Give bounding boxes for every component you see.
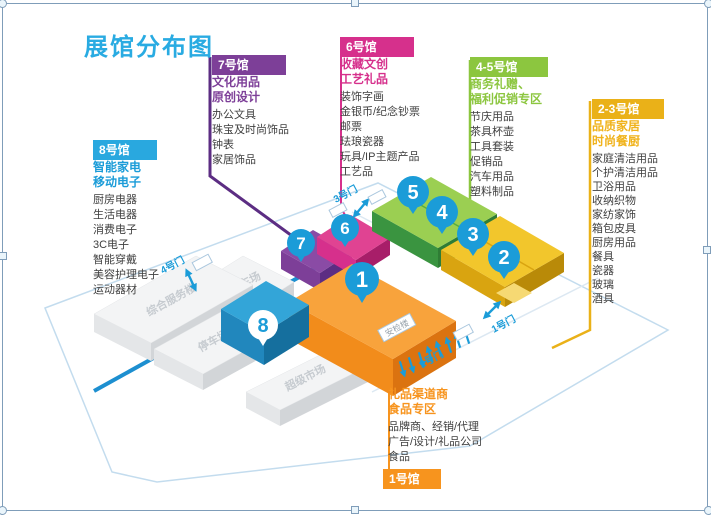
card-item: 餐具 [592, 250, 711, 264]
svg-text:2: 2 [498, 247, 509, 269]
card-item: 茶具杯壶 [470, 125, 590, 140]
hall-6-subtitle: 收藏文创 [340, 57, 460, 72]
svg-text:4: 4 [436, 202, 448, 224]
card-item: 厨房用品 [592, 236, 711, 250]
svg-text:8: 8 [257, 315, 268, 337]
card-item: 品牌商、经销/代理 [388, 420, 508, 435]
card-item: 装饰字画 [340, 90, 460, 105]
card-item: 玻璃 [592, 278, 711, 292]
card-item: 运动器材 [93, 283, 213, 298]
hall-8-subtitle: 移动电子 [93, 175, 213, 190]
card-item: 促销品 [470, 155, 590, 170]
svg-text:3: 3 [467, 224, 478, 246]
hall-4-5-subtitle: 商务礼赠、 [470, 77, 590, 92]
card-item: 广告/设计/礼品公司 [388, 435, 508, 450]
card-item: 瓷器 [592, 264, 711, 278]
card-item: 珐琅瓷器 [340, 135, 460, 150]
card-item: 汽车用品 [470, 170, 590, 185]
hall-7-card-header: 7号馆 [212, 55, 286, 75]
hall-7-subtitle: 原创设计 [212, 90, 332, 105]
card-item: 个护清洁用品 [592, 166, 711, 180]
hall-8-subtitle: 智能家电 [93, 160, 213, 175]
hall-4-5-card-header: 4-5号馆 [470, 57, 548, 77]
hall-2-3-card: 2-3号馆 品质家居 时尚餐厨 家庭清洁用品 个护清洁用品 卫浴用品 收纳织物 … [592, 99, 711, 306]
hall-1-subtitle: 礼品渠道商 [388, 387, 508, 402]
gate-3-label: 3号门 [331, 182, 360, 205]
card-item: 3C电子 [93, 238, 213, 253]
card-item: 生活电器 [93, 208, 213, 223]
card-item: 钟表 [212, 138, 332, 153]
card-item: 厨房电器 [93, 193, 213, 208]
svg-text:1: 1 [356, 267, 368, 292]
exhibition-map-image: 停车场 综合服务楼 停车场 超级市场 [0, 0, 711, 517]
svg-text:5: 5 [407, 182, 418, 204]
card-item: 家纺家饰 [592, 208, 711, 222]
hall-1-card: 礼品渠道商 食品专区 品牌商、经销/代理 广告/设计/礼品公司 食品 1号馆 [388, 383, 508, 489]
hall-1-subtitle: 食品专区 [388, 402, 508, 417]
hall-6-card-header: 6号馆 [340, 37, 414, 57]
card-item: 工具套装 [470, 140, 590, 155]
hall-6-subtitle: 工艺礼品 [340, 72, 460, 87]
card-item: 卫浴用品 [592, 180, 711, 194]
hall-2-3-subtitle: 品质家居 [592, 119, 711, 134]
card-item: 消费电子 [93, 223, 213, 238]
hall-1-card-header: 1号馆 [383, 469, 441, 489]
gate-1-label: 1号门 [489, 312, 518, 335]
card-item: 家居饰品 [212, 153, 332, 168]
hall-6-card: 6号馆 收藏文创 工艺礼品 装饰字画 金银币/纪念钞票 邮票 珐琅瓷器 玩具/I… [340, 37, 460, 180]
card-item: 美容护理电子 [93, 268, 213, 283]
card-item: 酒具 [592, 292, 711, 306]
hall-4-5-card: 4-5号馆 商务礼赠、 福利促销专区 节庆用品 茶具杯壶 工具套装 促销品 汽车… [470, 57, 590, 200]
selection-border-right [707, 3, 708, 510]
svg-text:7: 7 [296, 234, 305, 253]
gate-1-arrow-icon [480, 298, 504, 322]
card-item: 塑料制品 [470, 185, 590, 200]
card-item: 智能穿戴 [93, 253, 213, 268]
page-title: 展馆分布图 [84, 27, 214, 62]
gate-3-booth-right [368, 190, 386, 205]
hall-8-card-header: 8号馆 [93, 140, 157, 160]
card-item: 珠宝及时尚饰品 [212, 123, 332, 138]
resize-handle-bottom-center[interactable] [351, 506, 359, 514]
gate-1-booth [453, 324, 473, 340]
svg-text:6: 6 [340, 219, 349, 238]
hall-2-3-subtitle: 时尚餐厨 [592, 134, 711, 149]
resize-handle-bottom-right[interactable] [704, 506, 711, 515]
card-item: 玩具/IP主题产品 [340, 150, 460, 165]
resize-handle-middle-right[interactable] [703, 246, 711, 254]
resize-handle-middle-left[interactable] [0, 252, 7, 260]
card-item: 办公文具 [212, 108, 332, 123]
hall-7-card: 7号馆 文化用品 原创设计 办公文具 珠宝及时尚饰品 钟表 家居饰品 [212, 55, 332, 168]
card-item: 家庭清洁用品 [592, 152, 711, 166]
hall-8-card: 8号馆 智能家电 移动电子 厨房电器 生活电器 消费电子 3C电子 智能穿戴 美… [93, 140, 213, 298]
resize-handle-top-right[interactable] [704, 0, 711, 8]
hall-7-subtitle: 文化用品 [212, 75, 332, 90]
hall-4-5-subtitle: 福利促销专区 [470, 92, 590, 107]
card-item: 食品 [388, 450, 508, 465]
card-item: 节庆用品 [470, 110, 590, 125]
hall-2-3-card-header: 2-3号馆 [592, 99, 664, 119]
resize-handle-top-center[interactable] [351, 0, 359, 7]
card-item: 工艺品 [340, 165, 460, 180]
card-item: 邮票 [340, 120, 460, 135]
card-item: 箱包皮具 [592, 222, 711, 236]
card-item: 金银币/纪念钞票 [340, 105, 460, 120]
card-item: 收纳织物 [592, 194, 711, 208]
